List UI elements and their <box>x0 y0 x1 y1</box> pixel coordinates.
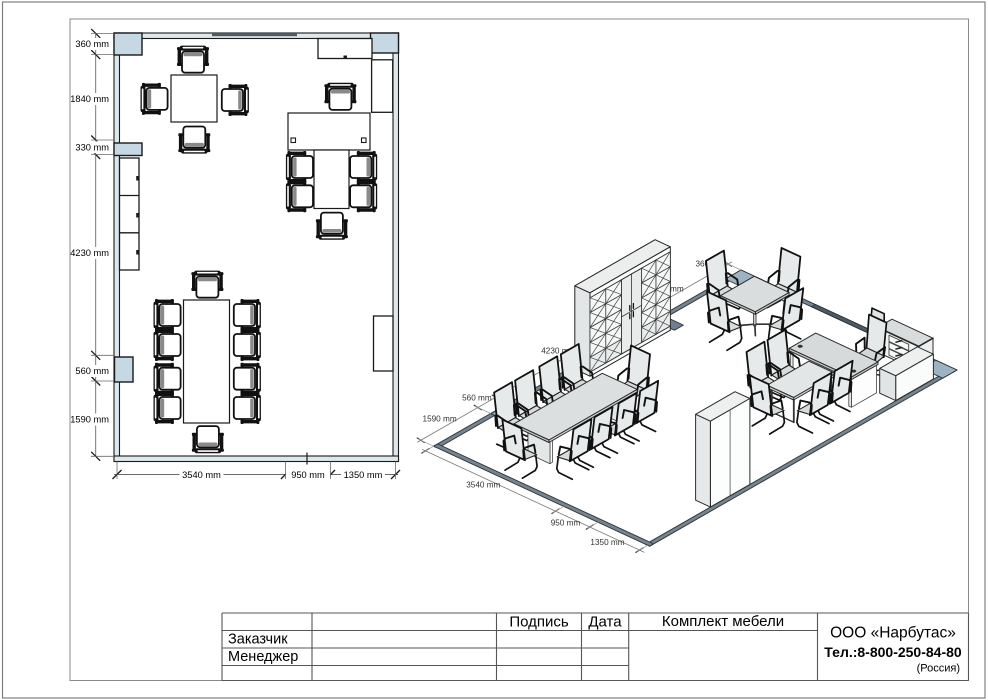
svg-text:330 mm: 330 mm <box>75 143 109 153</box>
svg-text:1350 mm: 1350 mm <box>590 538 624 547</box>
svg-text:950 mm: 950 mm <box>291 470 325 480</box>
svg-text:360 mm: 360 mm <box>75 39 109 49</box>
svg-text:Тел.:8-800-250-84-80: Тел.:8-800-250-84-80 <box>824 644 962 660</box>
svg-text:ООО «Нарбутас»: ООО «Нарбутас» <box>830 625 956 642</box>
svg-text:1350 mm: 1350 mm <box>344 470 383 480</box>
svg-text:Дата: Дата <box>588 614 622 631</box>
svg-text:Менеджер: Менеджер <box>228 649 298 665</box>
svg-text:3540 mm: 3540 mm <box>182 470 221 480</box>
svg-text:4230 mm: 4230 mm <box>70 248 109 258</box>
svg-text:Комплект мебели: Комплект мебели <box>662 613 784 630</box>
svg-text:Заказчик: Заказчик <box>228 632 288 648</box>
svg-text:950 mm: 950 mm <box>551 519 581 528</box>
svg-text:560 mm: 560 mm <box>75 366 109 376</box>
svg-text:3540 mm: 3540 mm <box>466 481 500 490</box>
svg-text:(Россия): (Россия) <box>917 663 960 675</box>
svg-text:1840 mm: 1840 mm <box>70 94 109 104</box>
svg-text:560 mm: 560 mm <box>462 393 492 402</box>
svg-text:1590 mm: 1590 mm <box>70 415 109 425</box>
svg-text:1590 mm: 1590 mm <box>423 415 457 424</box>
svg-text:Подпись: Подпись <box>509 614 569 631</box>
